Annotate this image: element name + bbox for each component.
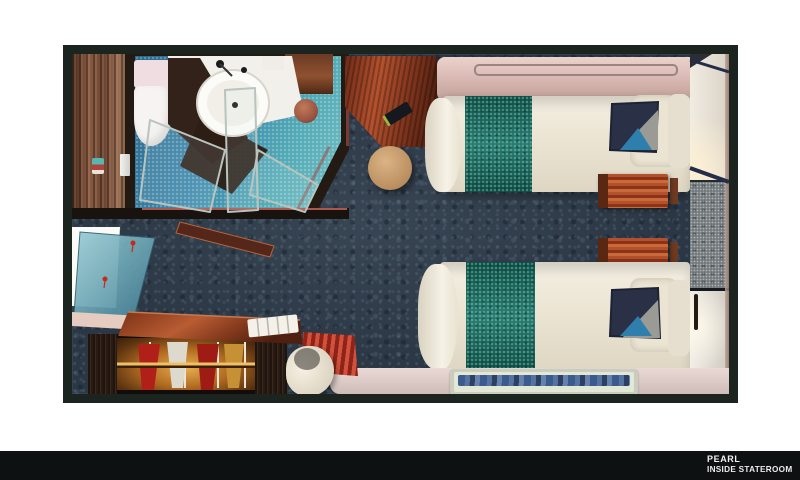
accent-cushion-upper bbox=[610, 102, 658, 152]
shower-shelf bbox=[262, 56, 284, 70]
stateroom-floorplan-page: PEARL INSIDE STATEROOM bbox=[0, 0, 800, 480]
accent-cushion-lower bbox=[610, 288, 660, 338]
detail-overlay bbox=[72, 54, 729, 394]
footer-bar: PEARL INSIDE STATEROOM bbox=[0, 451, 800, 480]
hanging-garments bbox=[117, 342, 255, 390]
shower-drain-mat bbox=[294, 99, 318, 123]
floorplan-frame bbox=[63, 45, 738, 403]
door-panel-trim bbox=[690, 54, 729, 182]
room-type-label: INSIDE STATEROOM bbox=[707, 465, 792, 475]
brand-label: PEARL bbox=[707, 454, 741, 465]
